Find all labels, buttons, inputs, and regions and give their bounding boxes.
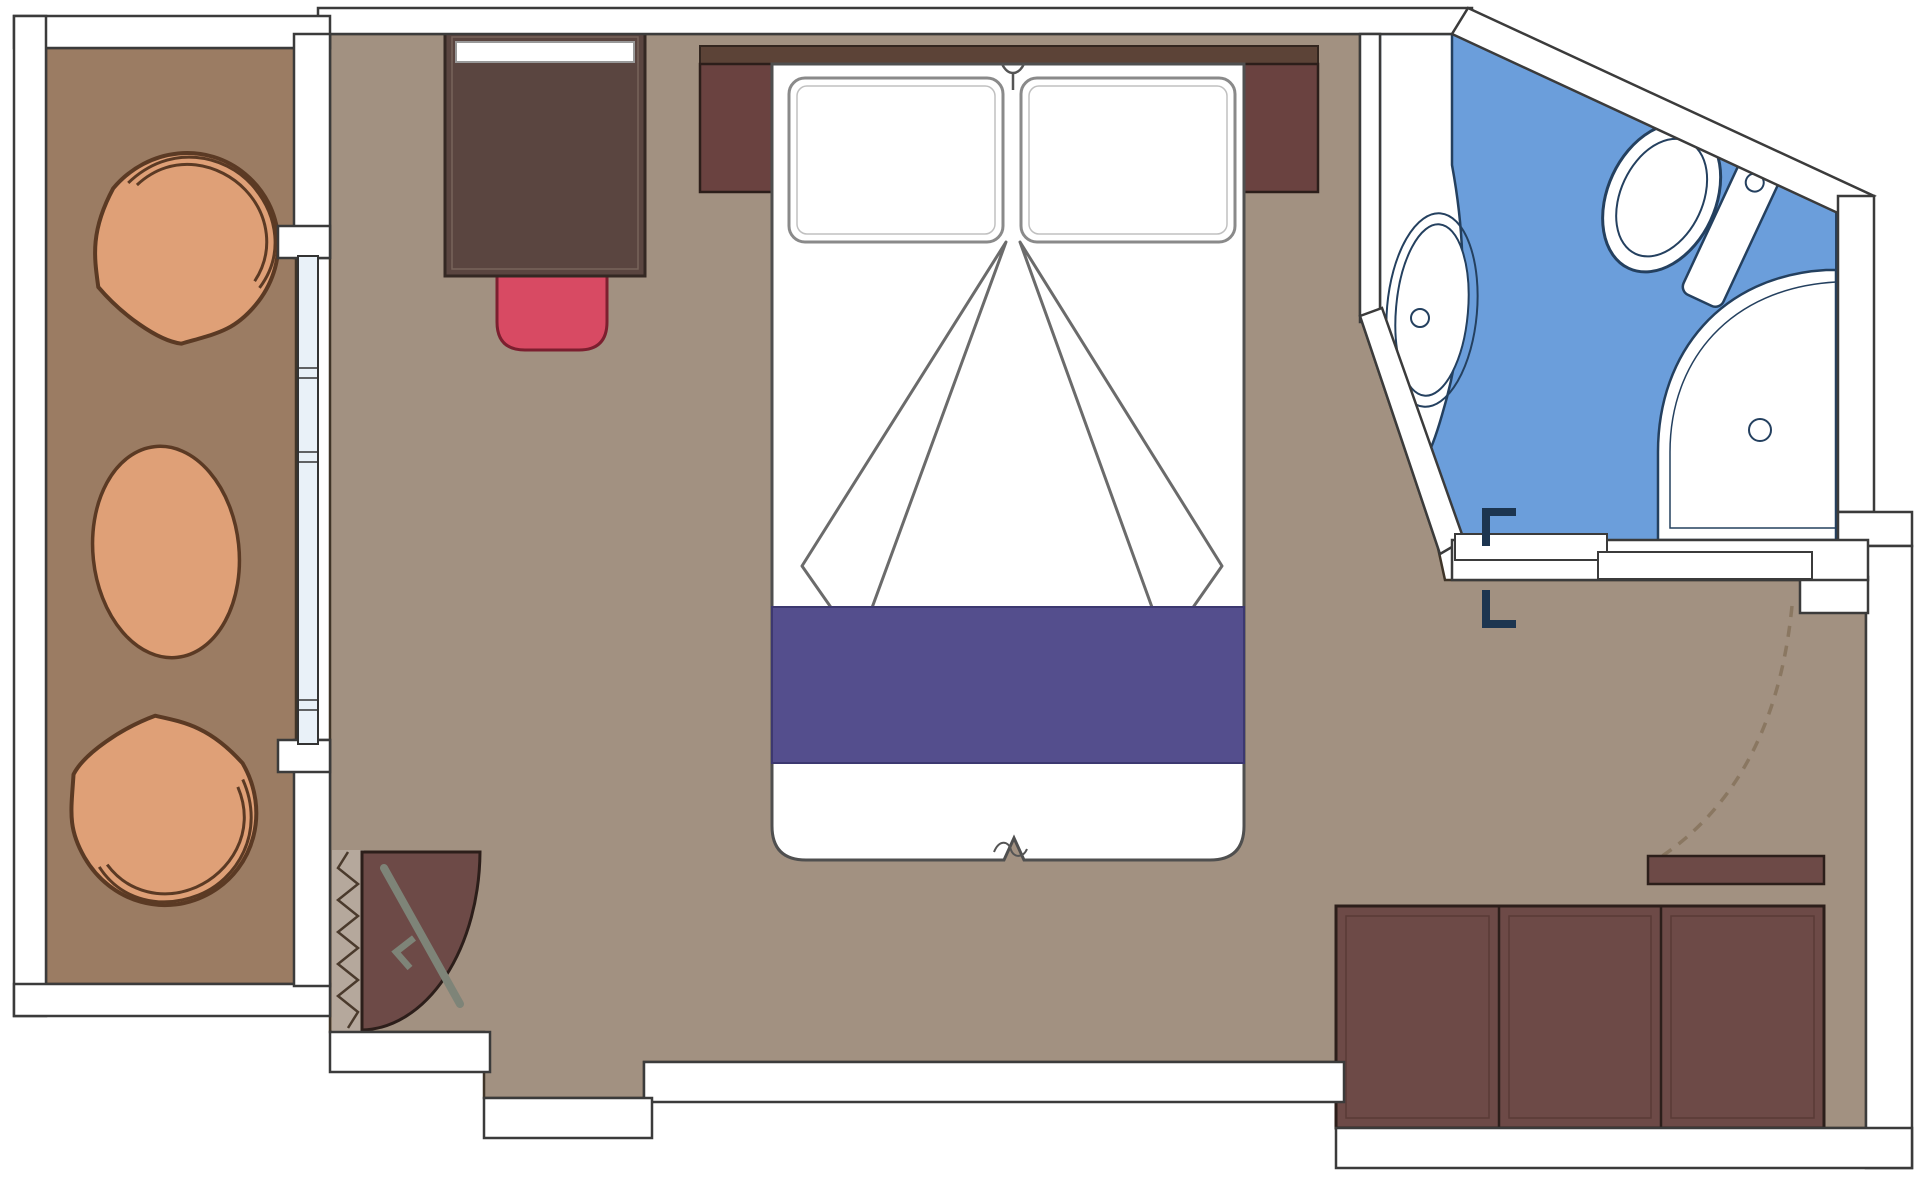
- divider-wall-top: [294, 34, 330, 258]
- desk-shelf: [456, 42, 634, 62]
- floor-plan-page: [0, 0, 1920, 1188]
- pillow-left: [789, 78, 1003, 242]
- entry-shelf: [1648, 856, 1824, 884]
- wardrobe-three-door: [1336, 906, 1824, 1128]
- nightstand-left: [700, 64, 774, 192]
- sink-faucet-icon: [1411, 309, 1429, 327]
- wall-right-lower: [1866, 546, 1912, 1168]
- nightstand-right: [1244, 64, 1318, 192]
- desk: [445, 30, 645, 276]
- balcony-wall-left: [14, 16, 46, 1016]
- shower-drain-icon: [1749, 419, 1771, 441]
- balcony-wall-top: [14, 16, 330, 48]
- divider-step-top: [278, 226, 330, 258]
- bathroom-sliding-door-panel-1: [1455, 534, 1607, 560]
- wall-right-upper: [1838, 196, 1874, 512]
- wall-bottom-left: [330, 1032, 490, 1072]
- pillow-right: [1021, 78, 1235, 242]
- wall-top: [318, 8, 1472, 34]
- bathroom-wall-left: [1360, 34, 1380, 322]
- balcony-wall-bottom: [14, 984, 330, 1016]
- wall-bottom-right: [1336, 1128, 1912, 1168]
- entry-door-jamb: [1800, 577, 1868, 613]
- bathroom-sliding-door-panel-2: [1598, 552, 1812, 579]
- wall-bottom-notch: [484, 1098, 652, 1138]
- bed-runner: [772, 607, 1244, 763]
- floor-plan-drawing: [0, 0, 1920, 1188]
- divider-wall-bottom: [294, 740, 330, 986]
- sliding-glass-balcony-door: [298, 256, 318, 744]
- wall-bottom-middle: [644, 1062, 1344, 1102]
